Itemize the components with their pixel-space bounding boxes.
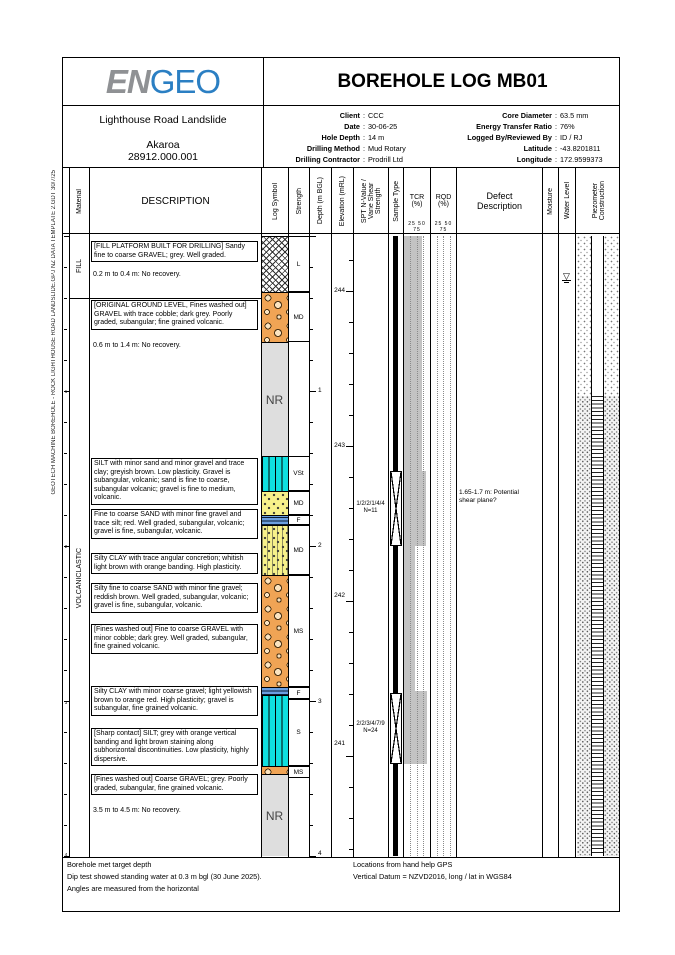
- column-header-elevation: Elevation (mRL): [331, 168, 353, 234]
- column-header-log-symbol: Log Symbol: [261, 168, 288, 234]
- elevation-tick: [346, 291, 353, 292]
- drilling-info-left: Client:CCCDate:30-06-25Hole Depth:14 mDr…: [268, 110, 406, 165]
- column-header-label-depth: Depth (m BGL): [317, 177, 324, 224]
- strength-cell: MD: [289, 292, 309, 342]
- column-header-label-spt: SPT N-Value / Vane Shear Strength: [361, 179, 382, 223]
- column-header-piezometer: Piezometer Construction: [575, 168, 621, 234]
- ruler-tick: [64, 422, 67, 423]
- piezo-riser-pipe: [591, 236, 604, 396]
- spt-sample-symbol: [390, 471, 402, 546]
- strength-cell: F: [289, 515, 309, 525]
- material-band: VOLCANICLASTIC: [69, 298, 89, 858]
- elevation-label: 241: [325, 740, 345, 747]
- defect-note: 1.65-1.7 m: Potential shear plane?: [459, 489, 529, 505]
- piezo-filter-right: [604, 396, 619, 856]
- engeo-logo: ENGEO: [106, 63, 220, 101]
- log-segment-gravel: [262, 766, 288, 774]
- info-value: 14 m: [368, 132, 384, 143]
- ruler-tick: [64, 794, 67, 795]
- info-row: Hole Depth:14 m: [268, 132, 406, 143]
- info-separator: :: [360, 132, 368, 143]
- footer-note: Dip test showed standing water at 0.3 m …: [67, 871, 262, 883]
- material-label: VOLCANICLASTIC: [76, 548, 83, 608]
- tcr-bar: [404, 236, 422, 471]
- column-line-elevation: [331, 234, 332, 858]
- description-box: Fine to coarse SAND with minor fine grav…: [91, 509, 258, 539]
- project-location: Akaroa: [63, 139, 263, 151]
- column-header-tcr: TCR (%)25 50 75: [403, 168, 430, 234]
- log-segment-clay: [262, 687, 288, 695]
- info-row: Latitude:-43.8201811: [446, 143, 603, 154]
- strength-cell: F: [289, 687, 309, 699]
- ruler-depth-label: 3: [63, 700, 69, 705]
- ruler-tick: [64, 825, 67, 826]
- elevation-tick: [349, 818, 353, 819]
- depth-tick: [309, 825, 313, 826]
- info-row: Date:30-06-25: [268, 121, 406, 132]
- file-reference-text: GEOTECH MACHINE BOREHOLE - ROCK LIGHTHOU…: [51, 170, 57, 495]
- column-line-moisture: [542, 234, 543, 858]
- header-title-row: ENGEO BOREHOLE LOG MB01: [63, 58, 619, 106]
- rqd-gridline: [437, 236, 438, 856]
- project-number: 28912.000.001: [63, 151, 263, 163]
- depth-label: 4: [318, 850, 322, 857]
- log-segment-silt: [262, 456, 288, 491]
- info-value: CCC: [368, 110, 384, 121]
- info-separator: :: [552, 121, 560, 132]
- info-value: Mud Rotary: [368, 143, 406, 154]
- elevation-label: 243: [325, 442, 345, 449]
- elevation-tick: [349, 632, 353, 633]
- description-box: 3.5 m to 4.5 m: No recovery.: [91, 806, 258, 817]
- project-name: Lighthouse Road Landslide: [63, 114, 263, 126]
- info-value: Prodrill Ltd: [368, 154, 403, 165]
- info-label: Core Diameter: [446, 110, 552, 121]
- column-header-spt: SPT N-Value / Vane Shear Strength: [353, 168, 388, 234]
- description-box: [Sharp contact] SILT; grey with orange v…: [91, 728, 258, 766]
- ruler-tick: [64, 453, 67, 454]
- info-label: Latitude: [446, 143, 552, 154]
- depth-label: 3: [318, 698, 322, 705]
- elevation-tick: [349, 415, 353, 416]
- info-separator: :: [552, 154, 560, 165]
- ruler-tick: [64, 236, 69, 237]
- column-header-material: Material: [69, 168, 89, 234]
- description-box: Silty CLAY with trace angular concretion…: [91, 553, 258, 574]
- spt-result: 1/2/2/1/4/4N=11: [353, 501, 388, 516]
- footer-right-notes: Locations from hand help GPS Vertical Da…: [353, 859, 512, 883]
- ruler-tick: [64, 515, 67, 516]
- column-line-description: [89, 234, 90, 858]
- file-reference-sidetext: GEOTECH MACHINE BOREHOLE - ROCK LIGHTHOU…: [49, 170, 59, 910]
- info-value: -43.8201811: [560, 143, 600, 154]
- ruler-tick: [64, 608, 67, 609]
- ruler-tick: [64, 360, 67, 361]
- strength-cell: MS: [289, 575, 309, 687]
- material-band: FILL: [69, 234, 89, 298]
- info-row: Client:CCC: [268, 110, 406, 121]
- notes-footer: Borehole met target depth Dip test showe…: [63, 858, 619, 913]
- info-separator: :: [360, 110, 368, 121]
- elevation-tick: [349, 477, 353, 478]
- column-line-spt: [353, 234, 354, 858]
- column-header-label-tcr: TCR (%): [410, 194, 424, 208]
- column-header-depth: Depth (m BGL): [309, 168, 331, 234]
- info-label: Logged By/Reviewed By: [446, 132, 552, 143]
- water-level-triangle-icon: ▽: [561, 272, 572, 280]
- column-header-label-material: Material: [76, 189, 83, 214]
- elevation-tick: [349, 694, 353, 695]
- info-separator: :: [360, 121, 368, 132]
- strength-cell: MD: [289, 525, 309, 575]
- info-label: Date: [268, 121, 360, 132]
- column-header-label-description: DESCRIPTION: [141, 196, 209, 207]
- strength-cell: VSt: [289, 456, 309, 491]
- info-label: Hole Depth: [268, 132, 360, 143]
- ruler-depth-label: 4: [63, 852, 69, 857]
- description-box: Silty fine to coarse SAND with minor fin…: [91, 583, 258, 613]
- log-segment-gravel: [262, 292, 288, 342]
- depth-label: 1: [318, 387, 322, 394]
- info-label: Energy Transfer Ratio: [446, 121, 552, 132]
- log-segment-nr: NR: [262, 774, 288, 856]
- piezo-filter-left: [577, 396, 592, 856]
- depth-tick: [309, 670, 313, 671]
- piezo-backfill-right: [604, 236, 619, 396]
- depth-tick: [309, 794, 313, 795]
- spt-blows: 1/2/2/1/4/4: [353, 501, 388, 509]
- ruler-depth-label: 1: [63, 389, 69, 394]
- elevation-label: 244: [325, 287, 345, 294]
- elevation-tick: [349, 353, 353, 354]
- info-row: Drilling Contractor:Prodrill Ltd: [268, 154, 406, 165]
- rqd-gridline: [450, 236, 451, 856]
- info-label: Drilling Contractor: [268, 154, 360, 165]
- project-info: Lighthouse Road Landslide Akaroa 28912.0…: [63, 106, 263, 167]
- column-header-strength: Strength: [288, 168, 309, 234]
- company-logo: ENGEO: [63, 58, 263, 105]
- logo-en: EN: [106, 63, 150, 100]
- footer-note: Borehole met target depth: [67, 859, 262, 871]
- column-header-row: MaterialDESCRIPTIONLog SymbolStrengthDep…: [63, 168, 619, 234]
- info-value: 30-06-25: [368, 121, 397, 132]
- log-segment-silt: [262, 695, 288, 766]
- elevation-tick: [349, 384, 353, 385]
- elevation-tick: [349, 539, 353, 540]
- tcr-gridline: [410, 236, 411, 856]
- depth-tick: [309, 422, 313, 423]
- ruler-tick: [64, 577, 67, 578]
- piezo-screen-pipe: [591, 396, 604, 856]
- depth-tick: [309, 732, 313, 733]
- description-box: SILT with minor sand and minor gravel an…: [91, 458, 258, 505]
- column-header-label-piezometer: Piezometer Construction: [592, 181, 606, 220]
- depth-tick: [309, 701, 316, 702]
- header-info-row: Lighthouse Road Landslide Akaroa 28912.0…: [63, 106, 619, 168]
- elevation-tick: [349, 787, 353, 788]
- info-row: Energy Transfer Ratio:76%: [446, 121, 603, 132]
- elevation-label: 242: [325, 592, 345, 599]
- drilling-info-right: Core Diameter:63.5 mmEnergy Transfer Rat…: [446, 110, 603, 165]
- footer-note: Vertical Datum = NZVD2016, long / lat in…: [353, 871, 512, 883]
- info-label: Client: [268, 110, 360, 121]
- ruler-tick: [64, 329, 67, 330]
- info-value: 63.5 mm: [560, 110, 588, 121]
- scale-ticks-label: 25 50 75: [404, 221, 430, 233]
- strength-cell: L: [289, 236, 309, 292]
- depth-tick: [309, 577, 313, 578]
- log-body: FILLVOLCANICLASTIC[FILL PLATFORM BUILT F…: [63, 234, 619, 858]
- water-level-line: [564, 282, 569, 283]
- tcr-gridline: [417, 236, 418, 856]
- depth-tick: [309, 763, 313, 764]
- info-row: Core Diameter:63.5 mm: [446, 110, 603, 121]
- report-title-cell: BOREHOLE LOG MB01: [263, 58, 621, 105]
- description-box: Silty CLAY with minor coarse gravel; lig…: [91, 686, 258, 716]
- depth-tick: [309, 453, 313, 454]
- elevation-tick: [349, 849, 353, 850]
- info-row: Drilling Method:Mud Rotary: [268, 143, 406, 154]
- column-header-label-strength: Strength: [296, 188, 303, 214]
- elevation-tick: [349, 570, 353, 571]
- column-header-label-moisture: Moisture: [547, 188, 554, 215]
- scale-ticks-label: 25 50 75: [431, 221, 456, 233]
- tcr-gridline: [423, 236, 424, 856]
- info-separator: :: [552, 132, 560, 143]
- ruler-tick: [64, 298, 67, 299]
- spt-result: 2/2/3/4/7/9N=24: [353, 721, 388, 736]
- footer-note: Locations from hand help GPS: [353, 859, 512, 871]
- info-value: ID / RJ: [560, 132, 582, 143]
- ruler-tick: [64, 763, 67, 764]
- log-segment-nr: NR: [262, 342, 288, 456]
- footer-note: Angles are measured from the horizontal: [67, 883, 262, 895]
- depth-tick: [309, 329, 313, 330]
- spt-sample-symbol: [390, 693, 402, 764]
- description-box: [FILL PLATFORM BUILT FOR DRILLING] Sandy…: [91, 241, 258, 262]
- info-row: Logged By/Reviewed By:ID / RJ: [446, 132, 603, 143]
- elevation-tick: [349, 322, 353, 323]
- column-line-defect: [456, 234, 457, 858]
- ruler-tick: [64, 267, 67, 268]
- material-label: FILL: [76, 259, 83, 273]
- column-header-description: DESCRIPTION: [89, 168, 261, 234]
- info-value: 172.9599373: [560, 154, 603, 165]
- strength-cell: S: [289, 699, 309, 766]
- spt-blows: 2/2/3/4/7/9: [353, 721, 388, 729]
- info-separator: :: [552, 143, 560, 154]
- info-row: Longitude:172.9599373: [446, 154, 603, 165]
- description-box: [ORIGINAL GROUND LEVEL, Fines washed out…: [91, 300, 258, 330]
- ruler-tick: [64, 484, 67, 485]
- material-divider: [69, 298, 261, 299]
- ruler-depth-label: 2: [63, 544, 69, 549]
- piezo-backfill-left: [577, 236, 592, 396]
- column-header-label-defect: Defect Description: [477, 191, 522, 211]
- depth-tick: [309, 856, 316, 857]
- depth-tick: [309, 298, 313, 299]
- info-separator: :: [360, 143, 368, 154]
- column-header-water-level: Water Level: [558, 168, 575, 234]
- column-header-label-rqd: RQD (%): [436, 194, 452, 208]
- column-header-label-elevation: Elevation (mRL): [339, 176, 346, 226]
- column-header-defect: Defect Description: [456, 168, 542, 234]
- rqd-gridline: [443, 236, 444, 856]
- info-separator: :: [360, 154, 368, 165]
- elevation-tick: [346, 446, 353, 447]
- depth-tick: [309, 391, 316, 392]
- depth-tick: [309, 484, 313, 485]
- column-header-label-log-symbol: Log Symbol: [272, 183, 279, 220]
- spt-n-value: N=11: [353, 508, 388, 516]
- log-sheet-frame: ENGEO BOREHOLE LOG MB01 Lighthouse Road …: [62, 57, 620, 912]
- depth-tick: [309, 608, 313, 609]
- logo-geo: GEO: [150, 63, 220, 100]
- description-box: 0.2 m to 0.4 m: No recovery.: [91, 270, 258, 281]
- log-segment-hatch: [262, 236, 288, 292]
- column-line-rqd: [430, 234, 431, 858]
- water-level-symbol: ▽: [561, 272, 572, 283]
- log-segment-gravel: [262, 575, 288, 687]
- log-segment-sand: [262, 491, 288, 515]
- report-title: BOREHOLE LOG MB01: [337, 71, 547, 93]
- column-header-label-sample-type: Sample Type: [393, 181, 400, 222]
- description-box: [Fines washed out] Fine to coarse GRAVEL…: [91, 624, 258, 654]
- elevation-tick: [346, 601, 353, 602]
- column-header-moisture: Moisture: [542, 168, 558, 234]
- info-label: Drilling Method: [268, 143, 360, 154]
- log-segment-clay: [262, 515, 288, 525]
- depth-tick: [309, 546, 316, 547]
- depth-label: 2: [318, 542, 322, 549]
- strength-cell: MD: [289, 491, 309, 515]
- description-box: [Fines washed out] Coarse GRAVEL; grey. …: [91, 774, 258, 795]
- ruler-tick: [64, 732, 67, 733]
- column-line-water-level: [558, 234, 559, 858]
- depth-tick: [309, 639, 313, 640]
- info-value: 76%: [560, 121, 575, 132]
- column-line-sample-type: [388, 234, 389, 858]
- depth-tick: [309, 360, 313, 361]
- strength-cell: MS: [289, 766, 309, 778]
- column-header-sample-type: Sample Type: [388, 168, 403, 234]
- description-box: 0.6 m to 1.4 m: No recovery.: [91, 341, 258, 352]
- elevation-tick: [346, 756, 353, 757]
- column-header-label-water-level: Water Level: [564, 182, 571, 219]
- info-label: Longitude: [446, 154, 552, 165]
- borehole-log-page: GEOTECH MACHINE BOREHOLE - ROCK LIGHTHOU…: [0, 0, 675, 955]
- spt-n-value: N=24: [353, 728, 388, 736]
- log-segment-sand-silty: [262, 525, 288, 575]
- elevation-tick: [349, 663, 353, 664]
- info-separator: :: [552, 110, 560, 121]
- ruler-tick: [64, 670, 67, 671]
- drilling-info: Client:CCCDate:30-06-25Hole Depth:14 mDr…: [263, 106, 621, 167]
- depth-tick: [309, 267, 313, 268]
- elevation-tick: [349, 260, 353, 261]
- depth-tick: [309, 236, 316, 237]
- depth-tick: [309, 515, 313, 516]
- ruler-tick: [64, 639, 67, 640]
- footer-left-notes: Borehole met target depth Dip test showe…: [67, 859, 262, 895]
- column-header-rqd: RQD (%)25 50 75: [430, 168, 456, 234]
